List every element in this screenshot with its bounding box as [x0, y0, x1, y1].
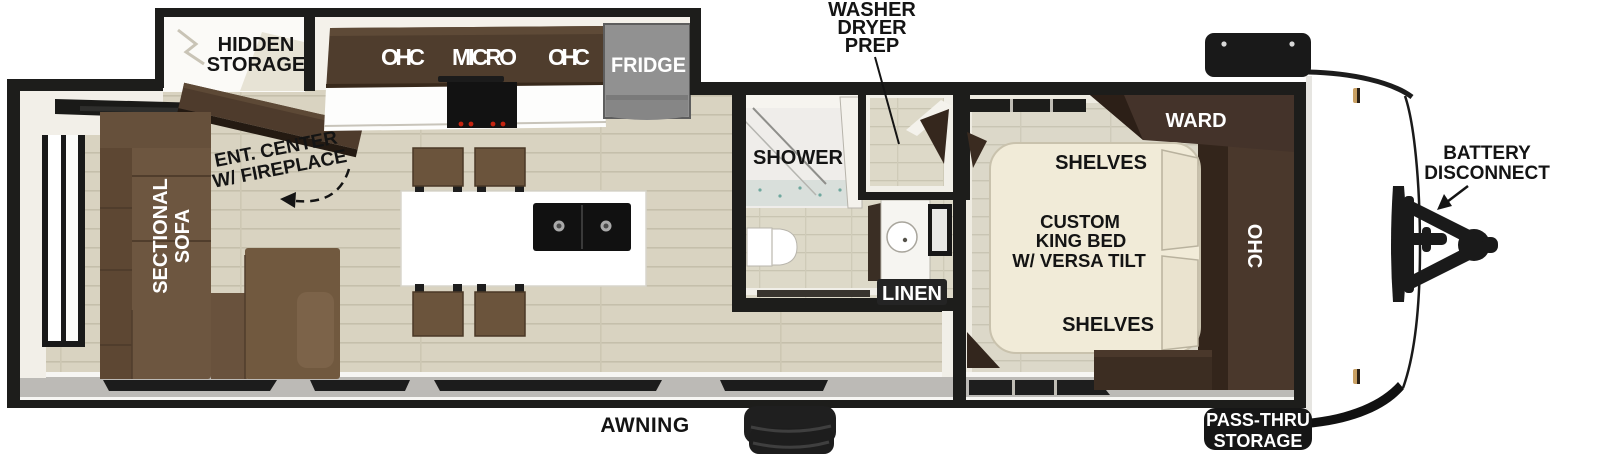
svg-text:OHC: OHC — [1243, 224, 1265, 268]
svg-text:MICRO: MICRO — [452, 44, 517, 70]
svg-text:W/ VERSA TILT: W/ VERSA TILT — [1012, 250, 1146, 271]
svg-text:WARD: WARD — [1165, 110, 1226, 132]
svg-text:STORAGE: STORAGE — [1214, 431, 1303, 451]
svg-text:OHC: OHC — [381, 44, 425, 70]
svg-text:CUSTOM: CUSTOM — [1040, 211, 1120, 232]
svg-text:HIDDEN: HIDDEN — [218, 34, 295, 56]
svg-text:OHC: OHC — [548, 44, 590, 70]
svg-text:SHELVES: SHELVES — [1055, 152, 1147, 174]
svg-text:FRIDGE: FRIDGE — [611, 53, 686, 77]
svg-text:STORAGE: STORAGE — [207, 54, 306, 76]
svg-text:KING BED: KING BED — [1036, 230, 1126, 251]
svg-text:SHELVES: SHELVES — [1062, 314, 1154, 336]
svg-text:AWNING: AWNING — [600, 414, 689, 437]
svg-text:SECTIONAL: SECTIONAL — [150, 178, 172, 294]
svg-text:PASS-THRU: PASS-THRU — [1206, 410, 1310, 430]
svg-text:PREP: PREP — [845, 35, 899, 57]
svg-text:BATTERY: BATTERY — [1443, 143, 1531, 164]
svg-text:SOFA: SOFA — [172, 209, 194, 263]
svg-text:DISCONNECT: DISCONNECT — [1424, 163, 1550, 184]
svg-text:SHOWER: SHOWER — [753, 147, 844, 169]
svg-text:LINEN: LINEN — [882, 283, 942, 305]
